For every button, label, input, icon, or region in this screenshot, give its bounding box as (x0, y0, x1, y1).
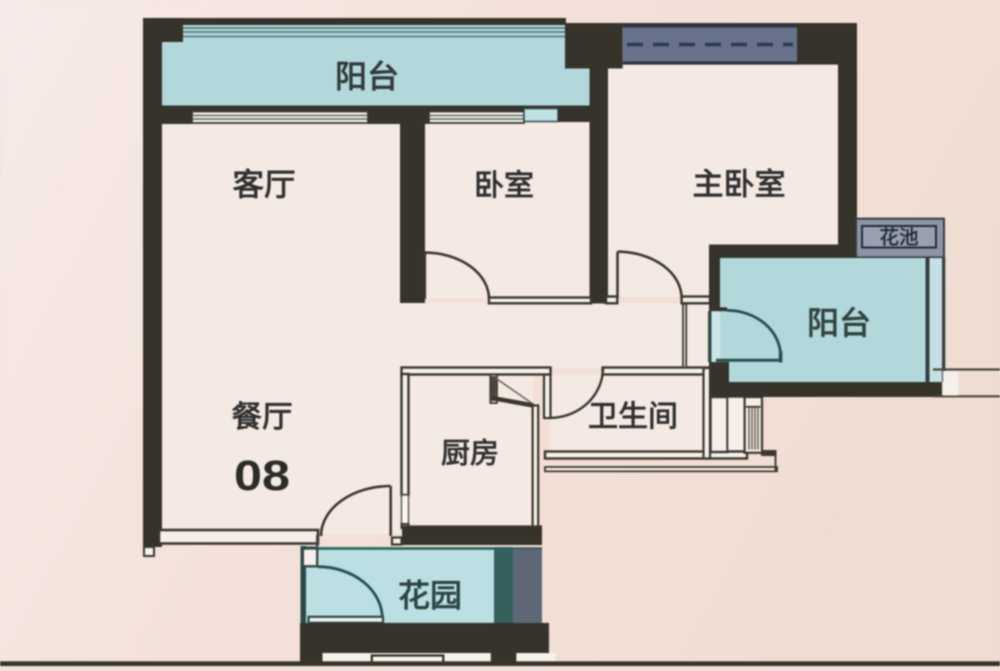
svg-text:08: 08 (234, 452, 290, 500)
